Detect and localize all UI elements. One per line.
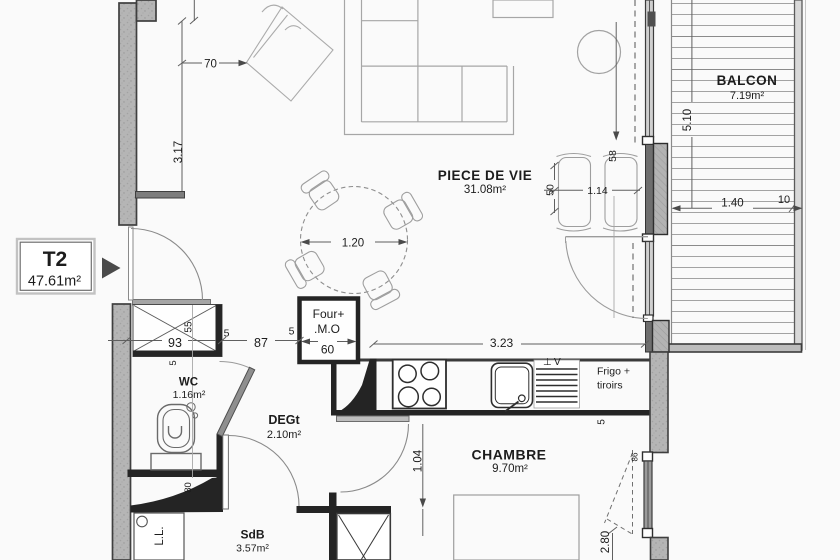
svg-text:86: 86 — [631, 452, 640, 461]
svg-text:5: 5 — [168, 360, 179, 365]
svg-text:93: 93 — [168, 336, 182, 350]
svg-text:3.23: 3.23 — [490, 336, 514, 350]
svg-text:70: 70 — [204, 59, 217, 71]
svg-text:58: 58 — [607, 150, 619, 162]
svg-text:.M.O: .M.O — [314, 322, 340, 336]
svg-text:60: 60 — [321, 343, 335, 357]
svg-text:1.16m²: 1.16m² — [173, 389, 206, 401]
svg-text:2.10m²: 2.10m² — [267, 429, 302, 441]
svg-text:1.04: 1.04 — [413, 449, 425, 472]
svg-text:10: 10 — [778, 194, 790, 206]
svg-text:1.40: 1.40 — [721, 198, 743, 210]
svg-text:5: 5 — [224, 328, 230, 340]
svg-text:5: 5 — [289, 326, 295, 338]
svg-text:87: 87 — [254, 336, 268, 350]
svg-text:DEGt: DEGt — [268, 413, 300, 427]
svg-text:WC: WC — [179, 377, 198, 389]
svg-text:9.70m²: 9.70m² — [492, 463, 528, 475]
svg-text:50: 50 — [545, 184, 557, 196]
svg-text:BALCON: BALCON — [717, 73, 778, 88]
svg-text:3.17: 3.17 — [173, 141, 185, 163]
svg-text:1.20: 1.20 — [342, 238, 364, 250]
svg-text:Frigo +: Frigo + — [597, 366, 630, 378]
svg-text:5: 5 — [597, 419, 608, 425]
svg-text:SdB: SdB — [241, 528, 265, 542]
svg-text:80: 80 — [183, 482, 194, 493]
svg-text:T2: T2 — [43, 248, 68, 271]
svg-text:CHAMBRE: CHAMBRE — [471, 447, 546, 463]
svg-text:L.L.: L.L. — [154, 526, 166, 545]
svg-text:tiroirs: tiroirs — [597, 380, 623, 392]
svg-text:V: V — [554, 357, 561, 368]
svg-text:⊥: ⊥ — [543, 357, 552, 368]
svg-text:1.14: 1.14 — [587, 185, 608, 197]
svg-text:31.08m²: 31.08m² — [464, 184, 506, 196]
svg-text:3.57m²: 3.57m² — [236, 543, 269, 555]
svg-text:47.61m²: 47.61m² — [28, 274, 81, 290]
svg-text:PIECE DE VIE: PIECE DE VIE — [438, 168, 533, 183]
svg-text:Four+: Four+ — [313, 307, 345, 321]
svg-text:5.10: 5.10 — [682, 109, 694, 131]
svg-text:7.19m²: 7.19m² — [730, 90, 765, 102]
svg-text:2.80: 2.80 — [600, 531, 612, 553]
